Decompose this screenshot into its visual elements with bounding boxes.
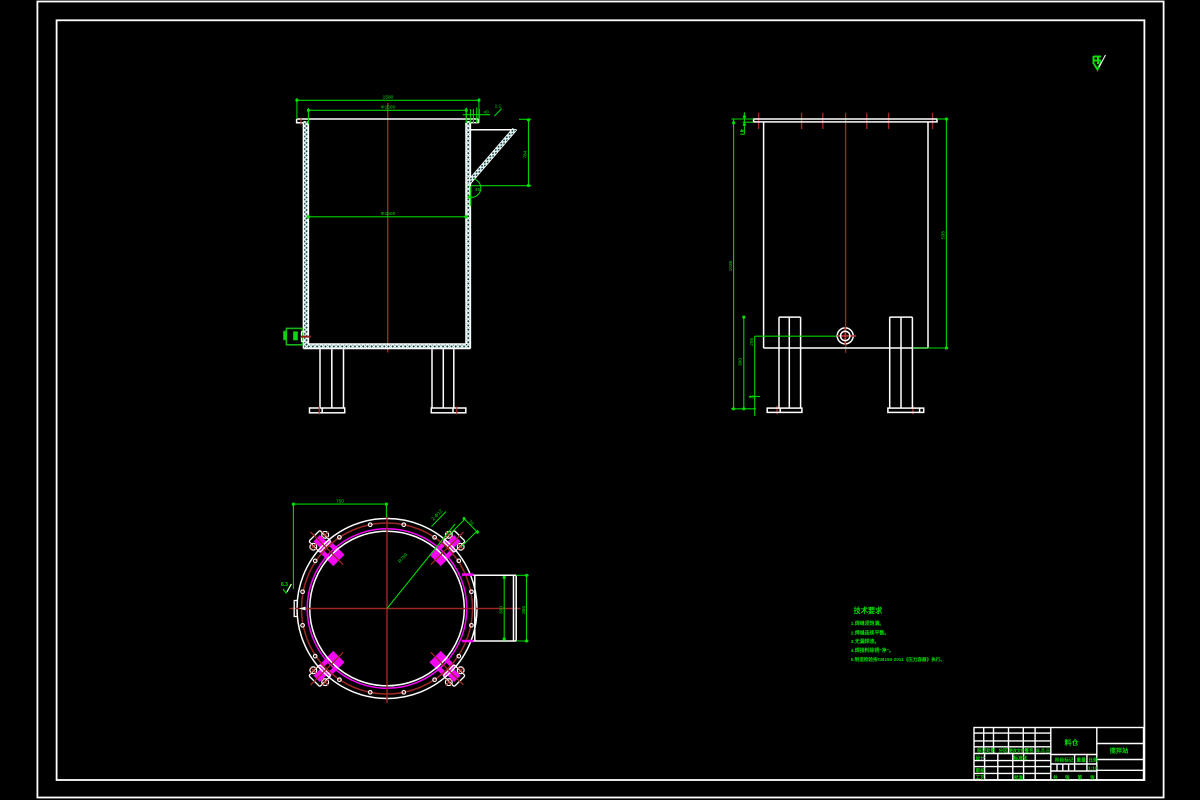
svg-text:40: 40: [483, 110, 489, 116]
svg-text:处数: 处数: [985, 747, 996, 754]
svg-text:年.月.日: 年.月.日: [1036, 748, 1050, 753]
svg-text:料仓: 料仓: [1065, 738, 1080, 747]
svg-text:6.3: 6.3: [281, 582, 288, 588]
svg-text:设计: 设计: [976, 755, 986, 762]
svg-text:366: 366: [521, 606, 527, 614]
svg-text:4.焊接料除锈"净"。: 4.焊接料除锈"净"。: [851, 647, 894, 654]
svg-text:45: 45: [475, 187, 481, 193]
svg-text:1035: 1035: [728, 260, 734, 271]
svg-text:1580: 1580: [383, 95, 394, 101]
svg-text:张: 张: [1090, 774, 1095, 781]
svg-text:40: 40: [749, 395, 755, 401]
svg-text:批准: 批准: [1014, 774, 1024, 781]
svg-text:分区: 分区: [999, 747, 1009, 754]
svg-text:2.焊缝连续平整。: 2.焊缝连续平整。: [851, 630, 889, 637]
svg-text:技术要求: 技术要求: [854, 606, 884, 615]
svg-text:784: 784: [523, 150, 529, 158]
svg-text:5.制造检验按GB150-2011《压力容器》执行。: 5.制造检验按GB150-2011《压力容器》执行。: [851, 656, 945, 663]
svg-text:535: 535: [941, 231, 947, 239]
svg-text:阶段标记: 阶段标记: [1055, 757, 1074, 764]
svg-text:重量: 重量: [1077, 757, 1087, 764]
svg-text:255: 255: [749, 337, 755, 345]
svg-text:标准化: 标准化: [1013, 755, 1028, 762]
svg-text:1:10: 1:10: [1088, 766, 1098, 771]
svg-text:张: 张: [1065, 774, 1070, 781]
svg-text:300: 300: [499, 606, 505, 614]
svg-text:共: 共: [1053, 774, 1058, 781]
svg-text:Φ1500: Φ1500: [381, 105, 396, 111]
svg-text:搅拌站: 搅拌站: [1110, 747, 1129, 755]
svg-text:1:1: 1:1: [495, 104, 502, 110]
svg-text:1.焊缝须饱满。: 1.焊缝须饱满。: [851, 620, 884, 627]
svg-text:审核: 审核: [976, 767, 986, 774]
svg-text:Φ1500: Φ1500: [381, 211, 396, 217]
svg-text:标记: 标记: [976, 747, 987, 754]
svg-text:390: 390: [738, 358, 744, 366]
svg-text:比例: 比例: [1089, 757, 1099, 764]
svg-text:工艺: 工艺: [976, 774, 986, 781]
svg-text:签名: 签名: [1024, 747, 1034, 754]
svg-text:第: 第: [1078, 774, 1083, 781]
svg-text:750: 750: [336, 499, 344, 505]
svg-text:3.无漏焊渣。: 3.无漏焊渣。: [851, 638, 880, 645]
